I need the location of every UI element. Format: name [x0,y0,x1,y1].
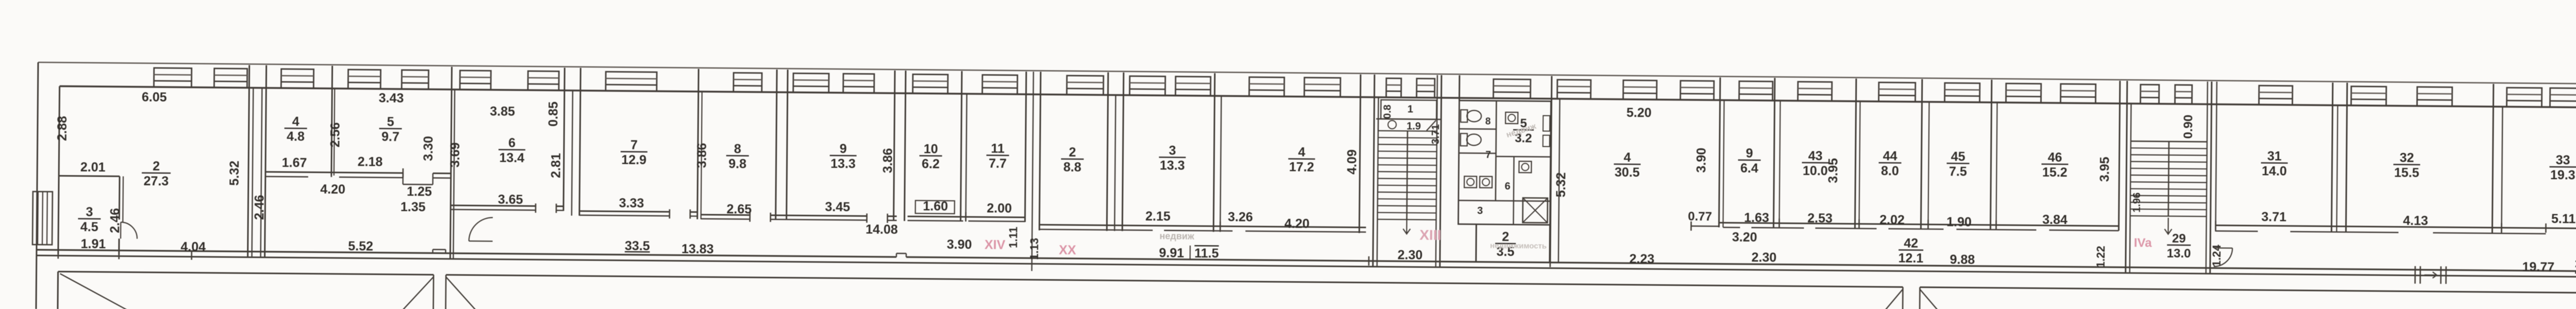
svg-text:2.30: 2.30 [1398,248,1423,262]
svg-text:6: 6 [1504,181,1510,192]
svg-text:14.0: 14.0 [2262,164,2287,178]
svg-text:8: 8 [1485,116,1491,127]
svg-text:3.85: 3.85 [490,104,515,118]
svg-text:1.25: 1.25 [406,184,432,199]
svg-text:8: 8 [734,142,741,156]
svg-text:3.84: 3.84 [2042,213,2067,227]
svg-text:12.9: 12.9 [621,153,647,167]
svg-text:27.3: 27.3 [144,174,169,188]
svg-text:30.5: 30.5 [1615,165,1640,180]
svg-text:недвижимость: недвижимость [1490,242,1547,251]
svg-text:2: 2 [152,159,160,174]
svg-text:31: 31 [2267,149,2282,163]
svg-text:6: 6 [509,136,516,150]
svg-text:15.2: 15.2 [2042,165,2067,180]
svg-text:4.20: 4.20 [320,182,346,197]
svg-text:43: 43 [1808,149,1823,163]
svg-text:32: 32 [2400,150,2414,165]
svg-text:3.26: 3.26 [1228,210,1253,224]
svg-text:1: 1 [1408,104,1413,115]
svg-text:5.32: 5.32 [227,161,242,186]
svg-text:1.67: 1.67 [282,156,307,170]
svg-text:2.56: 2.56 [328,122,343,147]
svg-text:1.91: 1.91 [81,237,106,251]
svg-text:4: 4 [1624,150,1631,165]
svg-text:13.3: 13.3 [1160,158,1185,173]
svg-text:4.5: 4.5 [80,220,98,234]
svg-text:4.09: 4.09 [1345,149,1359,175]
svg-text:15.5: 15.5 [2394,165,2419,180]
svg-text:13.4: 13.4 [499,151,524,165]
svg-text:0.85: 0.85 [546,101,561,127]
svg-text:5.52: 5.52 [348,239,374,253]
svg-text:46: 46 [2048,150,2062,165]
svg-text:4.8: 4.8 [286,129,304,144]
svg-text:3.20: 3.20 [1732,230,1757,245]
svg-text:2.53: 2.53 [1807,211,1833,226]
svg-text:7.7: 7.7 [989,156,1007,170]
svg-text:7: 7 [1485,150,1491,161]
svg-text:недвиж: недвиж [1160,231,1195,242]
svg-text:3: 3 [1169,143,1176,158]
svg-text:3.65: 3.65 [498,192,523,207]
svg-text:6.4: 6.4 [1740,161,1758,176]
svg-text:19.3: 19.3 [2550,168,2575,182]
svg-text:3: 3 [86,205,93,219]
svg-text:1.35: 1.35 [400,200,426,214]
svg-text:4.20: 4.20 [1284,216,1310,231]
svg-text:2.30: 2.30 [1751,250,1776,265]
svg-text:2.18: 2.18 [358,154,383,169]
svg-text:10.0: 10.0 [1803,164,1828,178]
svg-text:3.90: 3.90 [947,237,972,252]
svg-text:4.04: 4.04 [181,239,206,254]
svg-text:2.00: 2.00 [987,201,1012,215]
svg-text:42: 42 [1904,236,1918,250]
svg-text:1.13: 1.13 [1028,238,1041,260]
svg-text:1.22: 1.22 [2094,246,2107,268]
svg-text:3.95: 3.95 [1826,158,1840,183]
svg-text:3.43: 3.43 [379,91,404,106]
svg-text:6.2: 6.2 [922,157,940,171]
svg-text:3.90: 3.90 [1694,148,1708,173]
svg-text:3.95: 3.95 [2097,157,2112,182]
svg-text:14.08: 14.08 [866,222,898,237]
svg-text:5.11: 5.11 [2551,212,2576,226]
svg-text:7: 7 [631,138,638,152]
svg-text:1.63: 1.63 [1744,211,1769,225]
svg-text:29: 29 [2172,232,2186,246]
svg-text:1.90: 1.90 [1946,215,1972,229]
svg-text:5.32: 5.32 [1554,172,1568,197]
svg-text:9.91: 9.91 [1159,246,1184,260]
svg-text:9: 9 [840,142,847,156]
svg-text:7.5: 7.5 [1949,164,1967,179]
svg-text:13.83: 13.83 [682,242,714,256]
svg-text:5: 5 [387,115,394,129]
svg-text:9.88: 9.88 [1950,252,1975,267]
svg-text:10: 10 [924,142,938,156]
svg-text:2.88: 2.88 [55,116,70,141]
svg-text:4.13: 4.13 [2403,214,2428,228]
svg-text:8.8: 8.8 [1063,160,1081,175]
svg-text:45: 45 [1951,149,1965,164]
svg-text:3.69: 3.69 [448,142,462,167]
svg-text:3.86: 3.86 [694,143,709,168]
svg-text:44: 44 [1883,149,1897,163]
svg-text:1.9: 1.9 [1406,121,1421,132]
svg-text:33: 33 [2556,153,2570,167]
svg-text:0.77: 0.77 [1688,210,1712,224]
svg-text:11: 11 [991,142,1005,156]
svg-text:4: 4 [1298,145,1306,160]
svg-text:3.45: 3.45 [825,200,850,214]
svg-text:6.05: 6.05 [142,90,167,105]
svg-text:IVa: IVa [2134,236,2153,250]
svg-text:2.46: 2.46 [252,195,266,220]
svg-text:3: 3 [1477,205,1483,216]
svg-text:2.01: 2.01 [80,160,106,175]
svg-text:2.65: 2.65 [726,202,752,216]
svg-text:2.46: 2.46 [108,208,122,233]
svg-text:1.96: 1.96 [2131,193,2143,213]
svg-text:2.23: 2.23 [1629,252,1654,266]
svg-text:1.11: 1.11 [1007,227,1020,248]
svg-text:XX: XX [1059,243,1076,257]
svg-text:5.20: 5.20 [1626,106,1652,120]
svg-text:2.15: 2.15 [1145,209,1171,224]
svg-text:3.86: 3.86 [880,148,895,173]
svg-text:8.0: 8.0 [1881,164,1899,178]
svg-text:19.77: 19.77 [2522,260,2554,274]
svg-text:9.7: 9.7 [381,130,399,144]
svg-text:2.02: 2.02 [1879,213,1905,227]
svg-text:17.2: 17.2 [1289,160,1314,174]
svg-text:3.30: 3.30 [421,136,435,161]
svg-text:0.8: 0.8 [1382,105,1393,119]
svg-text:3.71: 3.71 [1430,124,1442,144]
svg-text:0.90: 0.90 [2181,115,2195,139]
svg-text:XIII: XIII [1419,227,1441,243]
svg-text:3.71: 3.71 [2261,210,2286,224]
svg-text:2.81: 2.81 [549,153,563,178]
svg-text:3.33: 3.33 [619,196,644,210]
svg-text:9: 9 [1746,146,1753,161]
svg-text:2: 2 [1069,145,1076,160]
svg-text:9.8: 9.8 [728,157,747,171]
svg-text:4: 4 [292,114,299,129]
svg-text:33.5: 33.5 [625,239,650,253]
svg-text:13.3: 13.3 [831,157,856,171]
svg-text:XIV: XIV [985,237,1006,252]
svg-text:13.0: 13.0 [2167,247,2191,261]
svg-text:11.5: 11.5 [1194,246,1219,261]
svg-text:12.1: 12.1 [1898,251,1923,265]
